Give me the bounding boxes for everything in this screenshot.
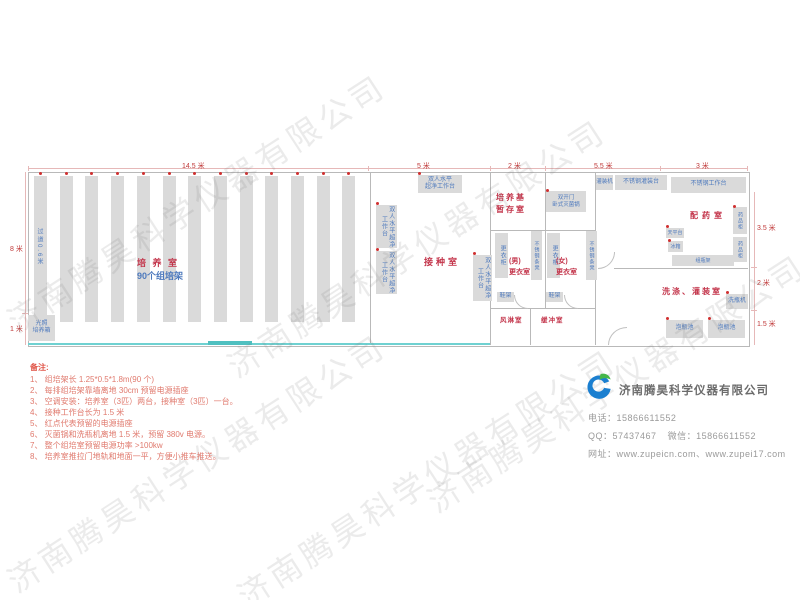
power-socket-dot [219,172,222,175]
culture-rack-column [291,176,304,322]
wardrobe: 更衣柜 [495,233,508,278]
website-urls: www.zupeicn.com、www.zupei17.com [617,449,786,459]
notes-block: 备注: 1、 组培架长 1.25*0.5*1.8m(90 个) 2、 每排组培架… [30,362,238,462]
note-item: 6、 灭菌锅和洗瓶机离地 1.5 米，预留 380v 电源。 [30,429,238,440]
dim-label: 2 米 [757,278,770,288]
dim-label: 5.5 米 [594,161,613,171]
culture-rack-column [265,176,278,322]
clean-bench: 双人水平超净工作台 [376,251,397,294]
wall [490,308,595,309]
washing-room-label: 洗涤、灌装室 [662,286,722,298]
power-socket-dot [708,317,711,320]
note-item: 8、 培养室推拉门地轨和地面一平，方便小推车推送。 [30,451,238,462]
dim-label: 2 米 [508,161,521,171]
culture-rack-column [240,176,253,322]
culture-rack-column [60,176,73,322]
aisle-label: 过道0.6米 [35,228,44,266]
dim-tick [368,166,369,171]
dim-label: 1 米 [10,324,23,334]
power-socket-dot [65,172,68,175]
dim-label: 1.5 米 [757,319,776,329]
wall [530,308,531,345]
dim-line-top [28,168,748,169]
female-changing-room-label: (女) 更衣室 [556,257,577,278]
medicine-cabinet: 药品柜 [733,207,747,234]
power-socket-dot [142,172,145,175]
note-item: 5、 红点代表预留的电源插座 [30,418,238,429]
dim-tick [751,267,757,268]
wechat-number: 15866611552 [696,431,756,441]
dim-tick [660,166,661,171]
stainless-work-table: 不锈钢工作台 [671,177,746,193]
culture-rack-column [342,176,355,322]
balance-table: 天平台 [666,228,684,238]
power-socket-dot [376,202,379,205]
power-socket-dot [726,291,729,294]
bottle-washer: 洗瓶机 [726,294,748,309]
dim-tick [545,166,546,171]
shoe-rack: 鞋架 [497,292,514,302]
power-socket-dot [168,172,171,175]
power-socket-dot [666,317,669,320]
bottle-soaking-pool: 泡瓶池 [666,320,703,338]
buffer-room-label: 缓冲室 [541,316,564,326]
shoe-rack: 鞋架 [546,292,563,302]
dim-label: 3 米 [696,161,709,171]
qq-number: 57437467 [613,431,657,441]
wall [490,230,595,231]
wall [614,268,748,269]
culture-rack-column [188,176,201,322]
power-socket-dot [376,248,379,251]
power-socket-dot [322,172,325,175]
steel-bench: 不锈钢条凳 [586,231,597,280]
dim-tick [22,313,28,314]
qq-label: QQ： [588,431,613,441]
dim-label: 14.5 米 [182,161,205,171]
culture-rack-column [317,176,330,322]
phone-label: 电话： [588,413,617,423]
clean-bench: 双人水平 超净工作台 [418,175,462,193]
culture-rack-column [85,176,98,322]
power-socket-dot [296,172,299,175]
wall [370,172,371,345]
notes-title: 备注: [30,362,238,373]
dim-label: 5 米 [417,161,430,171]
medicine-cabinet: 药品柜 [733,237,747,262]
website-label: 网址： [588,449,617,459]
power-socket-dot [733,205,736,208]
dim-tick [490,166,491,171]
dim-tick [751,310,757,311]
sliding-door [208,341,252,345]
power-socket-dot [666,225,669,228]
filling-machine: 灌装机 [596,175,613,190]
clean-bench: 双人水平超净工作台 [376,205,397,248]
floorplan-canvas: 济南腾昊科学仪器有限公司 济南腾昊科学仪器有限公司 济南腾昊科学仪器有限公司 济… [0,0,800,600]
fridge: 冰箱 [668,241,683,252]
stainless-filling-table: 不锈钢灌装台 [615,175,667,190]
culture-room-label: 培 养 室 90个组培架 [137,243,183,284]
phone-number: 15866611552 [617,413,677,423]
power-socket-dot [473,252,476,255]
bottle-soaking-pool: 泡瓶池 [708,320,745,338]
inoculation-room-label: 接种室 [424,256,460,270]
company-name: 济南腾昊科学仪器有限公司 [619,382,769,398]
dim-label: 3.5 米 [757,223,776,233]
lighting-incubator: 光照 培养箱 [28,315,55,341]
dispensing-room-label: 配药室 [690,210,726,222]
dim-label: 8 米 [10,244,23,254]
company-block: 济南腾昊科学仪器有限公司 电话：15866611552 QQ：57437467 … [585,373,786,460]
power-socket-dot [39,172,42,175]
wechat-label: 微信： [668,431,697,441]
note-item: 2、 每排组培架靠墙离地 30cm 预留电源插座 [30,385,238,396]
double-door-sterilizer: 双开门 卧式灭菌锅 [546,191,586,212]
air-shower-label: 风淋室 [500,316,523,326]
note-item: 3、 空调安装：培养室（3匹）两台，接种室（3匹）一台。 [30,396,238,407]
male-changing-room-label: (男) 更衣室 [509,257,530,278]
company-logo-icon [585,373,613,406]
culture-rack-count: 90个组培架 [137,271,183,281]
culture-rack-column [214,176,227,322]
culture-rack-column [111,176,124,322]
dim-line-right [754,192,755,345]
power-socket-dot [668,239,671,242]
power-socket-dot [245,172,248,175]
culture-room-name: 培 养 室 [137,258,179,268]
glass-front-wall [28,343,490,345]
medium-storage-label: 培养基 暂存室 [496,192,526,216]
note-item: 1、 组培架长 1.25*0.5*1.8m(90 个) [30,374,238,385]
watermark-text: 济南腾昊科学仪器有限公司 [227,337,624,600]
power-socket-dot [418,172,421,175]
dim-tick [28,166,29,171]
steel-bench: 不锈钢条凳 [531,231,542,280]
note-item: 7、 整个组培室预留电源功率 >100kw [30,440,238,451]
clean-bench: 双人水平超净工作台 [473,255,492,301]
dim-tick [747,166,748,171]
power-socket-dot [546,189,549,192]
note-item: 4、 接种工作台长为 1.5 米 [30,407,238,418]
dim-line-left [25,172,26,345]
bottle-rack: 组瓶架 [672,255,734,266]
